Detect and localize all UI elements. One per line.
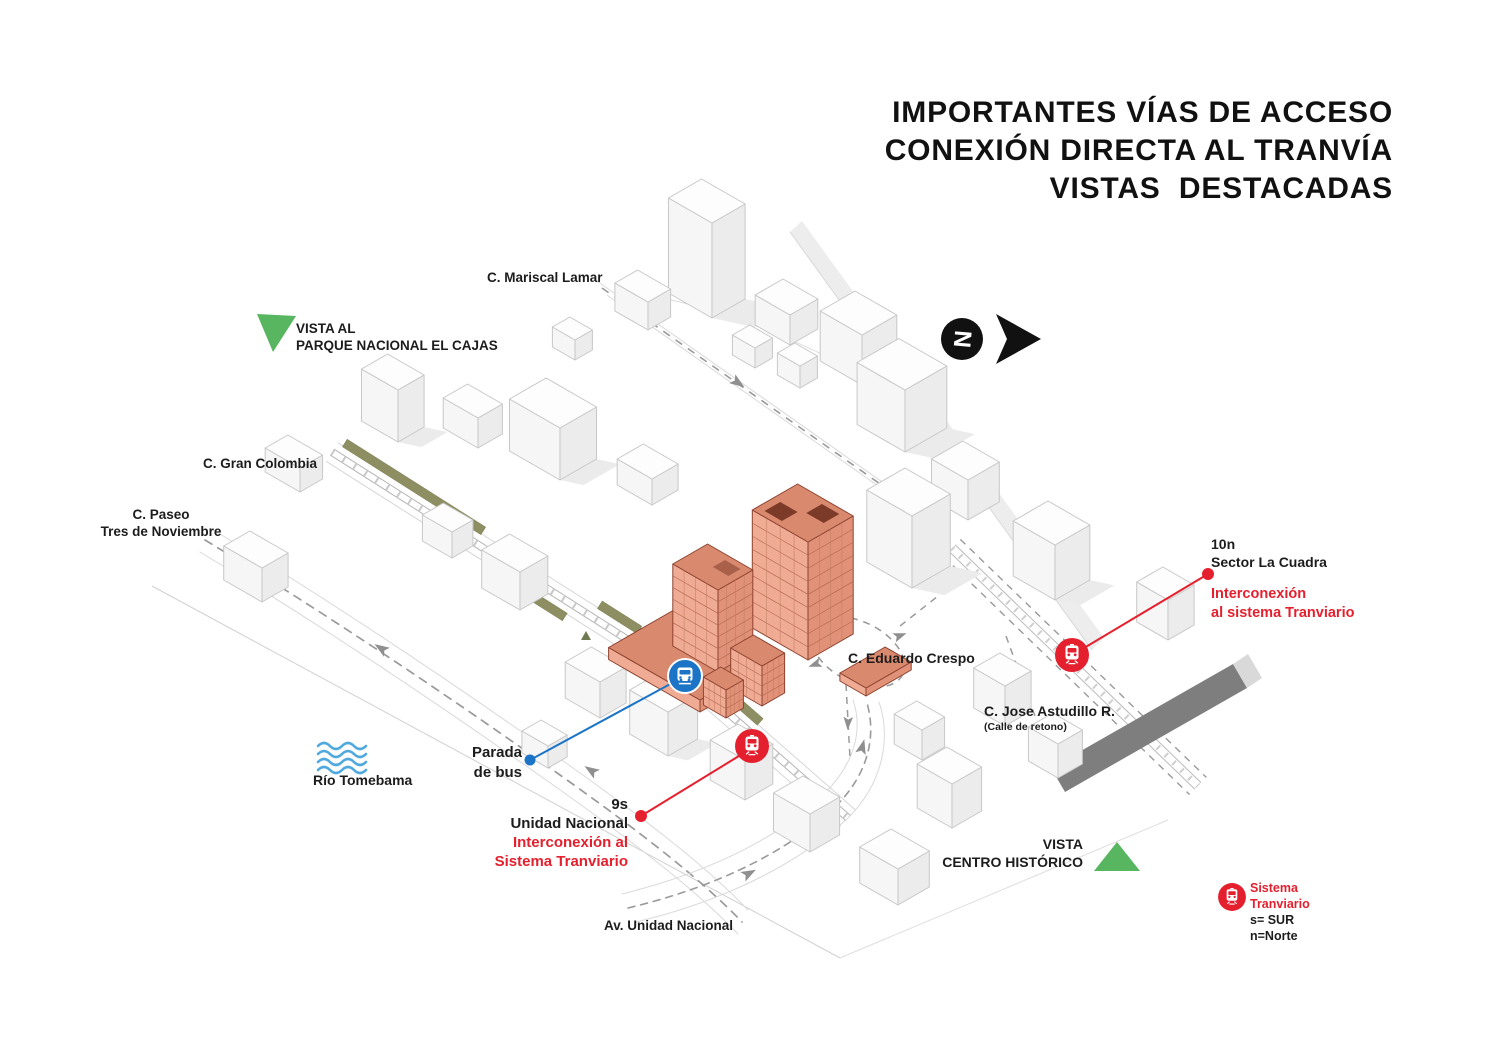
tram-10n-code: 10n — [1211, 535, 1327, 553]
river-label: Río Tomebama — [313, 772, 412, 790]
vista-cajas-line2: PARQUE NACIONAL EL CAJAS — [296, 337, 498, 354]
street-label-jose-astudillo: C. Jose Astudillo R. (Calle de retono) — [984, 703, 1115, 735]
wave-icon — [318, 743, 366, 773]
tram-9s-note2: Sistema Tranviario — [468, 852, 628, 871]
street-label-av-unidad-nacional: Av. Unidad Nacional — [604, 918, 733, 935]
tram-stop-10n-note: Interconexión al sistema Tranviario — [1211, 585, 1354, 623]
tram-10n-note2: al sistema Tranviario — [1211, 604, 1354, 623]
tram-9s-note1: Interconexión al — [468, 833, 628, 852]
title-line-2: CONEXIÓN DIRECTA AL TRANVÍA — [885, 132, 1393, 170]
street-label-eduardo-crespo: C. Eduardo Crespo — [848, 650, 975, 668]
vista-cajas-label: VISTA AL PARQUE NACIONAL EL CAJAS — [296, 320, 498, 354]
vista-centro-triangle-icon — [1094, 842, 1140, 871]
legend-tram-label: Sistema Tranviario — [1250, 880, 1310, 912]
tram-10n-note1: Interconexión — [1211, 585, 1354, 604]
tram-10n-icon — [1055, 638, 1089, 672]
legend-direction-label: s= SUR n=Norte — [1250, 912, 1298, 944]
legend-south: s= SUR — [1250, 912, 1298, 928]
tram-stop-9s-label: 9s Unidad Nacional Interconexión al Sist… — [468, 795, 628, 871]
tram-9s-icon — [735, 729, 769, 763]
legend-line2: Tranviario — [1250, 896, 1310, 912]
legend-tram-icon — [1218, 883, 1246, 911]
title-line-3: VISTAS DESTACADAS — [885, 170, 1393, 208]
bus-stop-line1: Parada — [412, 743, 522, 763]
vista-centro-line1: VISTA — [930, 835, 1083, 853]
street-label-paseo: C. Paseo Tres de Noviembre — [100, 506, 222, 540]
tram-10n-name: Sector La Cuadra — [1211, 553, 1327, 571]
paseo-line1: C. Paseo — [100, 506, 222, 523]
vista-cajas-triangle-icon — [257, 314, 296, 352]
tram-9s-name: Unidad Nacional — [468, 814, 628, 833]
street-label-gran-colombia: C. Gran Colombia — [203, 456, 317, 473]
legend-line1: Sistema — [1250, 880, 1310, 896]
bus-icon — [668, 659, 702, 693]
astudillo-name: C. Jose Astudillo R. — [984, 703, 1115, 719]
street-label-mariscal-lamar: C. Mariscal Lamar — [487, 270, 603, 287]
legend-north: n=Norte — [1250, 928, 1298, 944]
tram-stop-10n-label: 10n Sector La Cuadra — [1211, 535, 1327, 571]
vista-centro-line2: CENTRO HISTÓRICO — [930, 853, 1083, 871]
title-line-1: IMPORTANTES VÍAS DE ACCESO — [885, 94, 1393, 132]
paseo-line2: Tres de Noviembre — [100, 523, 222, 540]
vista-centro-label: VISTA CENTRO HISTÓRICO — [930, 835, 1083, 871]
site-diagram: N IMPORTANTES VÍAS DE ACCESO CONEXIÓN DI… — [0, 0, 1500, 1061]
vista-cajas-line1: VISTA AL — [296, 320, 498, 337]
north-compass-icon: N — [941, 314, 1041, 364]
bus-stop-line2: de bus — [412, 763, 522, 783]
bus-stop-label: Parada de bus — [412, 743, 522, 783]
astudillo-sub: (Calle de retono) — [984, 719, 1115, 735]
svg-text:N: N — [948, 329, 976, 349]
page-title: IMPORTANTES VÍAS DE ACCESO CONEXIÓN DIRE… — [885, 94, 1393, 208]
tram-9s-code: 9s — [468, 795, 628, 814]
